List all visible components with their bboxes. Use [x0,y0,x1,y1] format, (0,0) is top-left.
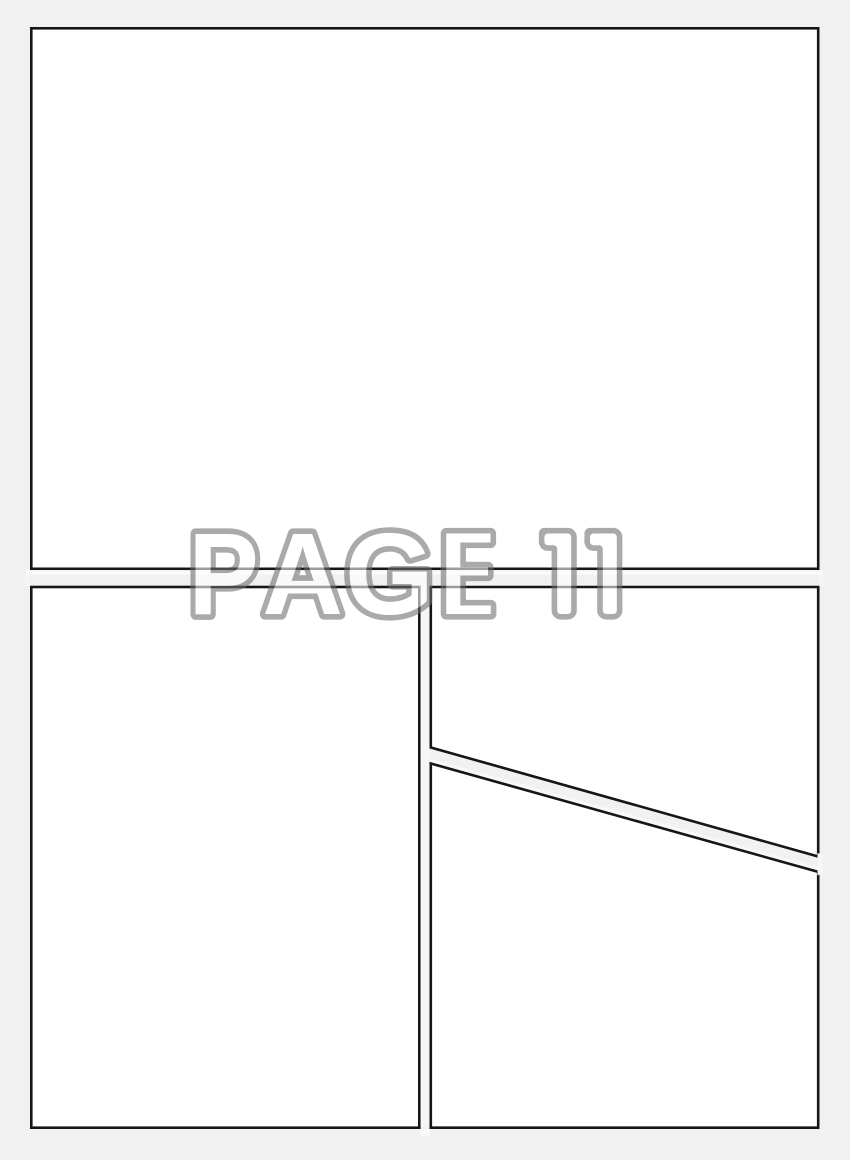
svg-text:A: A [262,510,343,639]
svg-text:G: G [345,510,434,639]
svg-text:P: P [188,510,258,639]
